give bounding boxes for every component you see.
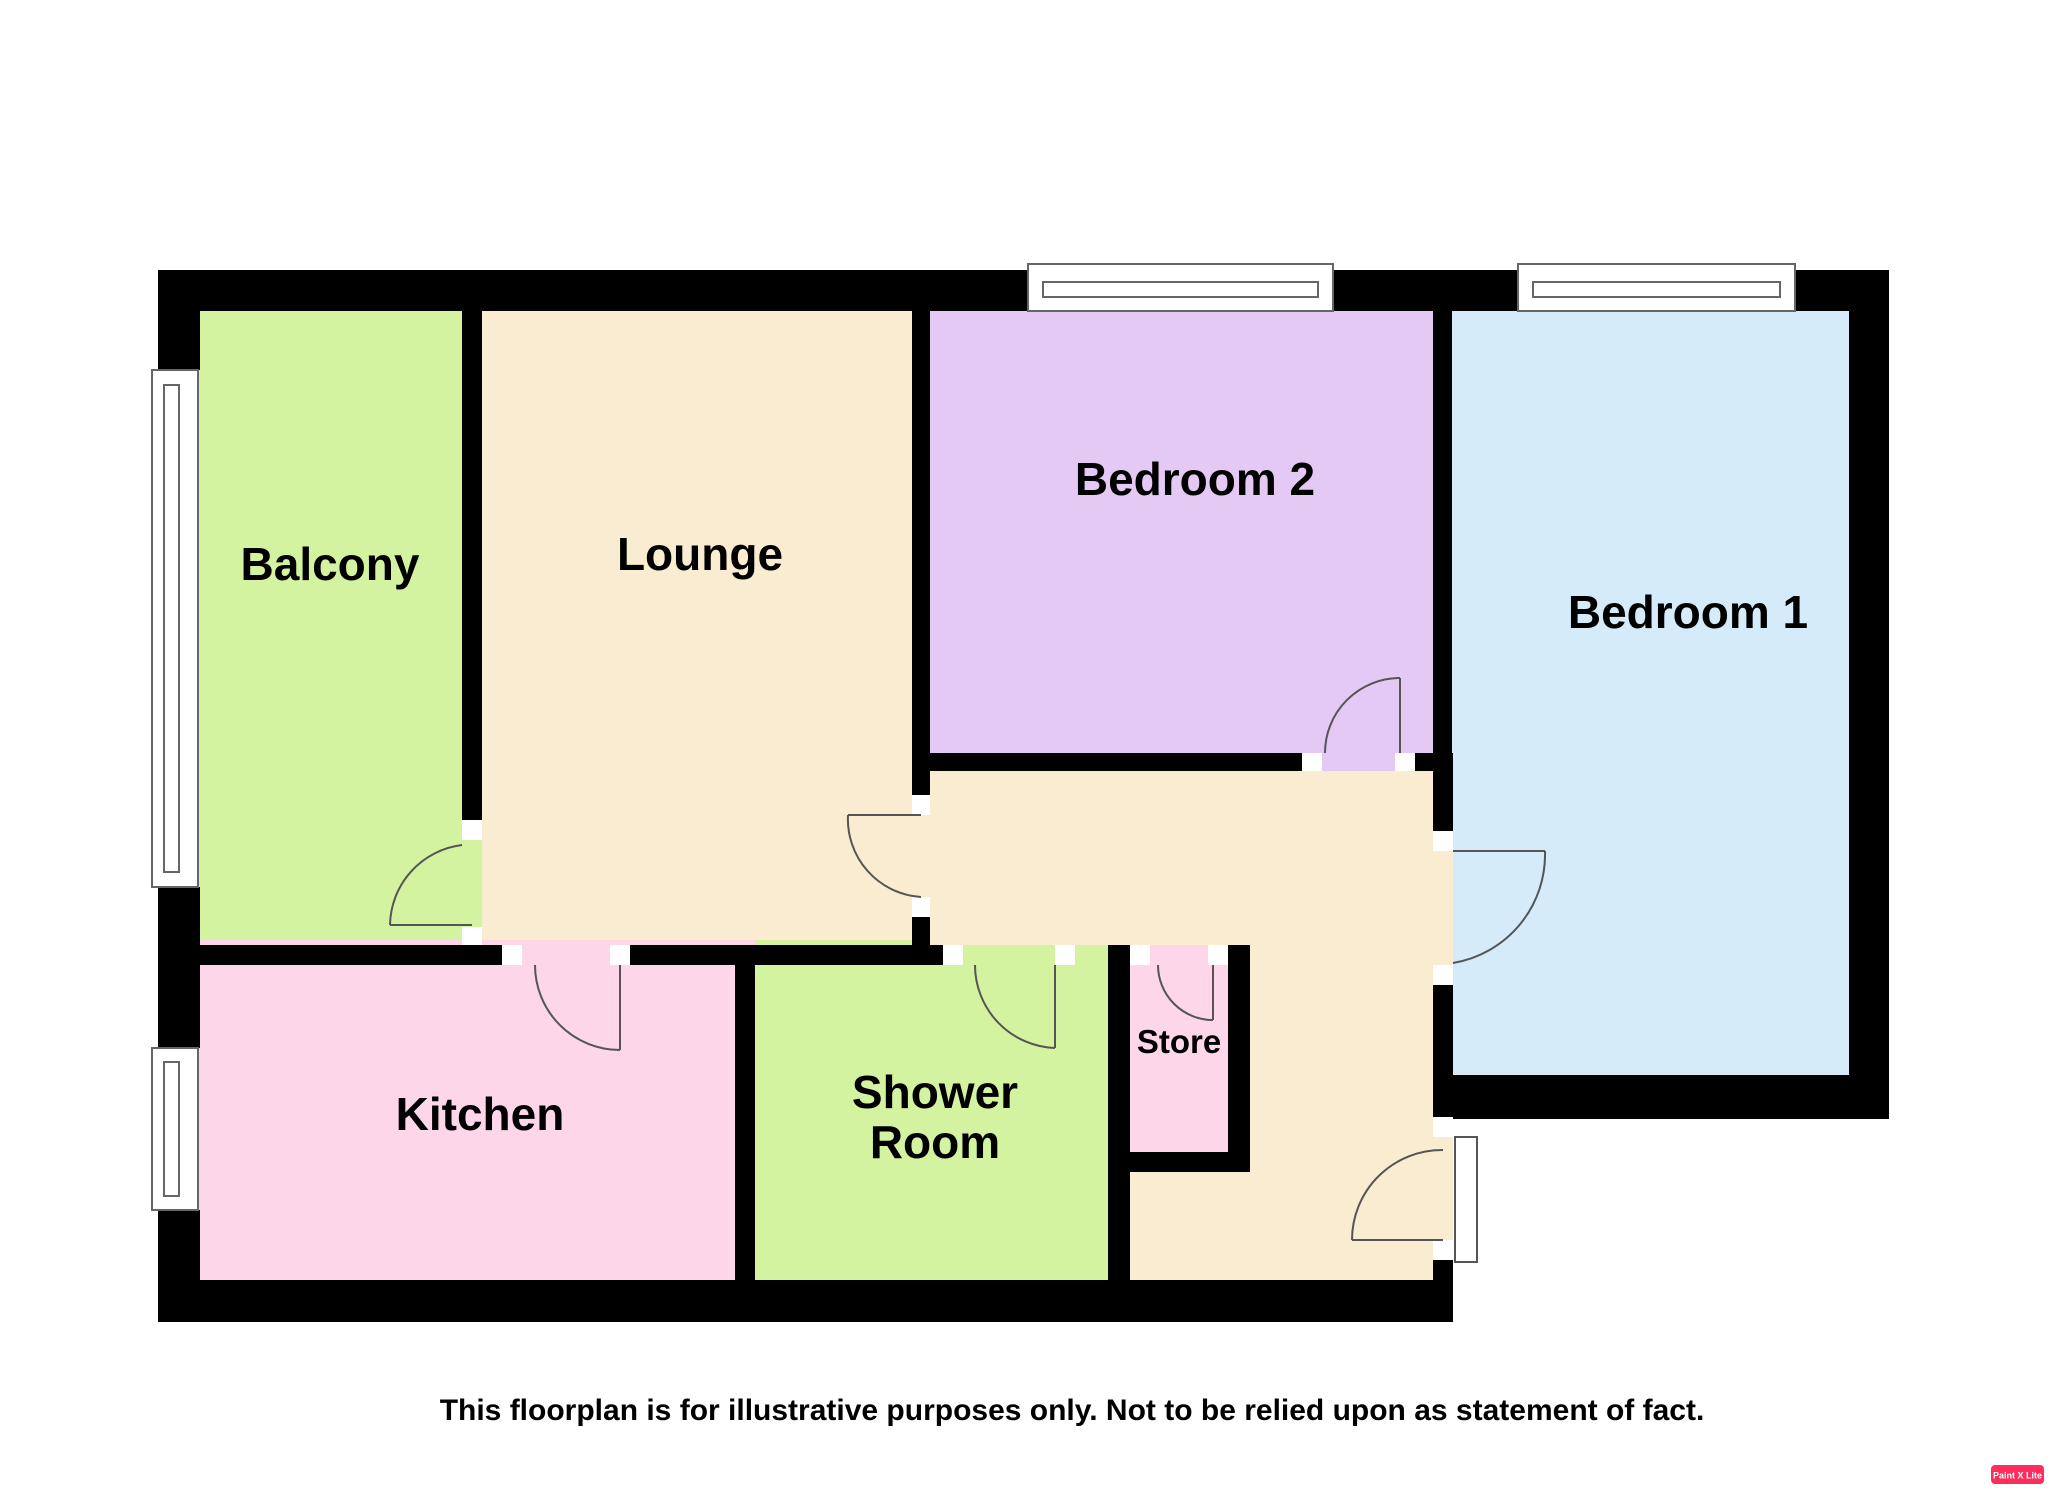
door-jamb	[1208, 945, 1228, 965]
wall-segment	[1433, 1075, 1453, 1117]
wall-segment	[912, 753, 930, 795]
wall-segment	[630, 945, 943, 965]
wall-segment	[930, 753, 1302, 771]
wall-segment	[1433, 1075, 1889, 1119]
door-jamb	[1433, 1240, 1453, 1260]
wall-segment	[1849, 270, 1889, 1119]
room-label-kitchen: Kitchen	[396, 1088, 565, 1140]
door-jamb	[1433, 1117, 1453, 1137]
wall-segment	[1433, 1260, 1453, 1280]
window-glass	[164, 385, 179, 872]
room-region-balcony	[198, 300, 482, 965]
wall-segment	[1333, 270, 1518, 311]
door-jamb	[1055, 945, 1075, 965]
wall-segment	[912, 311, 930, 753]
disclaimer-text: This floorplan is for illustrative purpo…	[440, 1394, 1705, 1427]
watermark-badge: Paint X Lite	[1991, 1465, 2044, 1484]
wall-segment	[1433, 311, 1452, 753]
wall-segment	[1228, 945, 1250, 1172]
window-glass	[1533, 282, 1780, 297]
wall-segment	[462, 311, 482, 820]
kitchen-window	[152, 1048, 198, 1210]
door-jamb	[1302, 753, 1322, 771]
door-jamb	[462, 820, 482, 840]
wall-segment	[1130, 1152, 1250, 1172]
wall-segment	[158, 1280, 1453, 1322]
door-jamb	[912, 795, 930, 815]
balcony-window	[152, 370, 198, 887]
door-jamb	[1395, 753, 1415, 771]
room-label-shower-line1: Shower	[852, 1066, 1018, 1118]
wall-segment	[1108, 945, 1130, 1280]
room-label-store: Store	[1137, 1023, 1221, 1060]
door-jamb	[943, 945, 963, 965]
wall-segment	[912, 917, 930, 945]
watermark-badge-label: Paint X Lite	[1993, 1471, 2042, 1481]
room-label-bedroom1: Bedroom 1	[1568, 586, 1808, 638]
wall-segment	[200, 945, 502, 965]
door-jamb	[1433, 831, 1453, 851]
door-jamb	[610, 945, 630, 965]
wall-segment	[158, 270, 200, 370]
door-jamb	[912, 897, 930, 917]
window-glass	[164, 1062, 179, 1196]
floorplan-page: Balcony Lounge Bedroom 2 Bedroom 1 Kitch…	[0, 0, 2048, 1489]
door-jamb	[462, 927, 482, 945]
wall-segment	[158, 270, 1028, 311]
door-jamb	[502, 945, 522, 965]
room-label-bedroom2: Bedroom 2	[1075, 453, 1315, 505]
room-region-bedroom1	[1433, 300, 1849, 1075]
wall-segment	[1433, 985, 1453, 1075]
room-label-shower-line2: Room	[870, 1116, 1000, 1168]
wall-segment	[158, 887, 200, 1048]
door-jamb	[1130, 945, 1150, 965]
wall-segment	[735, 945, 755, 1280]
room-region-bedroom2	[930, 300, 1452, 771]
room-label-lounge: Lounge	[617, 528, 783, 580]
room-region-lounge	[462, 300, 930, 965]
bedroom1-window	[1518, 264, 1795, 311]
bedroom2-window	[1028, 264, 1333, 311]
wall-segment	[1433, 753, 1453, 831]
room-label-balcony: Balcony	[241, 538, 420, 590]
window-glass	[1043, 282, 1318, 297]
floorplan-drawing: Balcony Lounge Bedroom 2 Bedroom 1 Kitch…	[0, 0, 2048, 1489]
entry-door-panel	[1455, 1137, 1477, 1262]
door-jamb	[1433, 965, 1453, 985]
